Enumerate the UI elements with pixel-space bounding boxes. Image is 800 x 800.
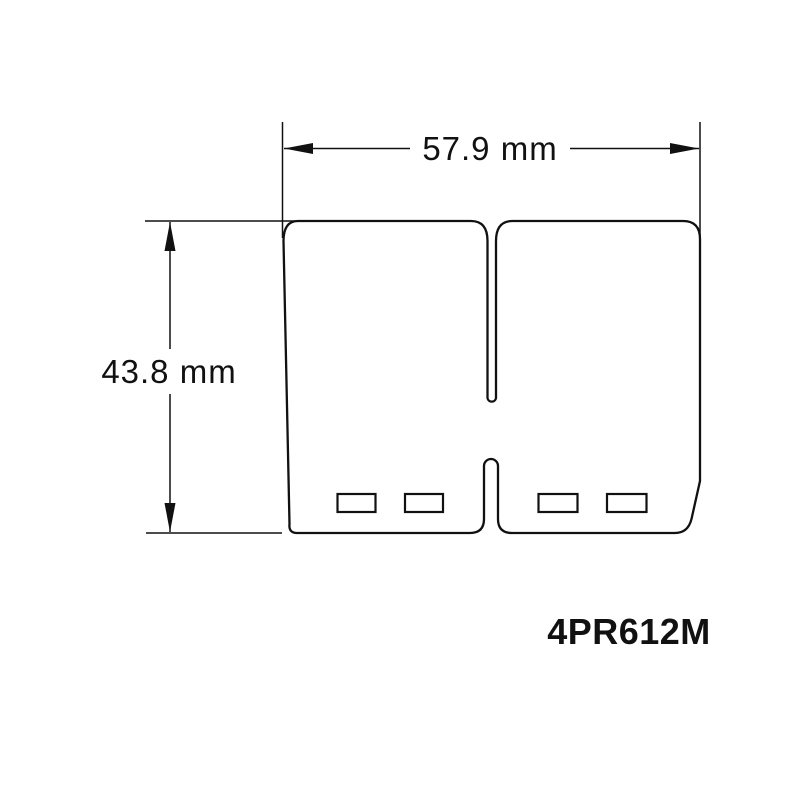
petal-hole-3 [539,494,578,512]
part-number-label: 4PR612M [547,611,711,652]
height-dim-arrowhead-bottom-icon [165,503,176,532]
width-dimension-label: 57.9 mm [422,130,557,167]
width-dim-arrowhead-right-icon [670,143,699,154]
petal-hole-4 [607,494,647,512]
height-dimension-label: 43.8 mm [101,353,236,390]
width-dim-arrowhead-left-icon [284,143,313,154]
technical-drawing-canvas: 57.9 mm 43.8 mm 4PR612M [0,0,800,800]
petal-hole-1 [338,494,376,512]
reed-petal-outline [284,221,701,533]
petal-hole-2 [405,494,443,512]
height-dim-arrowhead-top-icon [165,222,176,251]
drawing-page: 57.9 mm 43.8 mm 4PR612M [0,0,800,800]
